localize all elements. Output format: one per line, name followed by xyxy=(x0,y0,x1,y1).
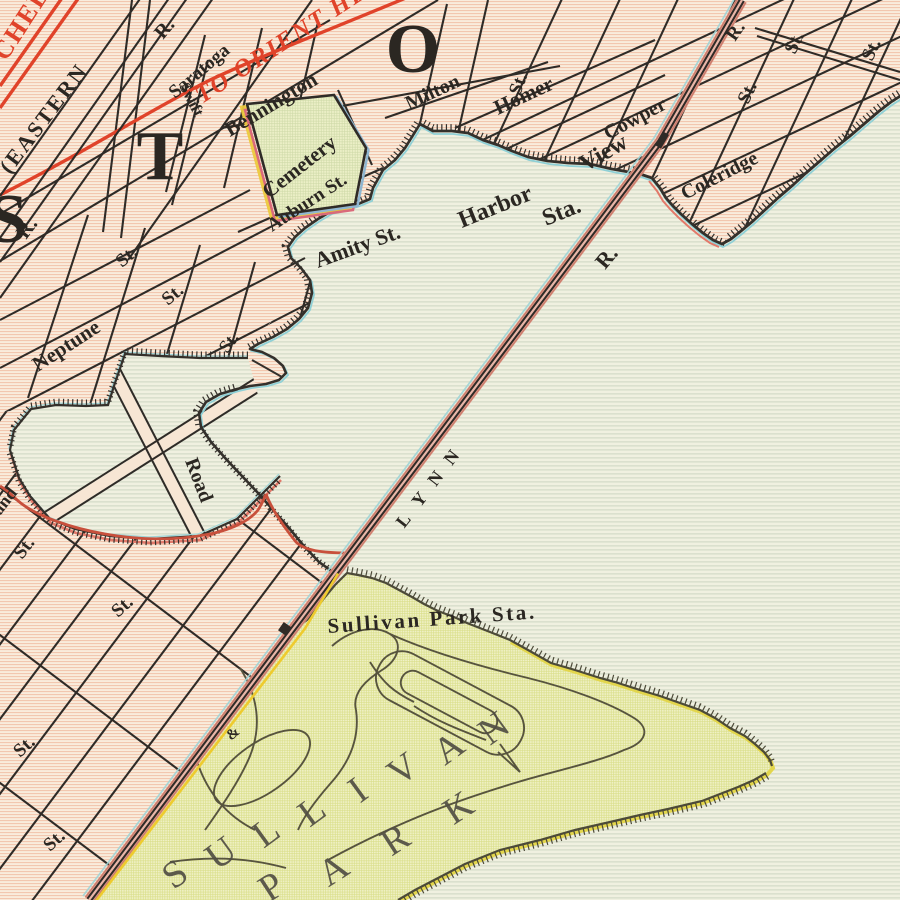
svg-text:S: S xyxy=(0,181,27,258)
svg-text:O: O xyxy=(386,11,440,88)
svg-text:T: T xyxy=(137,118,184,195)
